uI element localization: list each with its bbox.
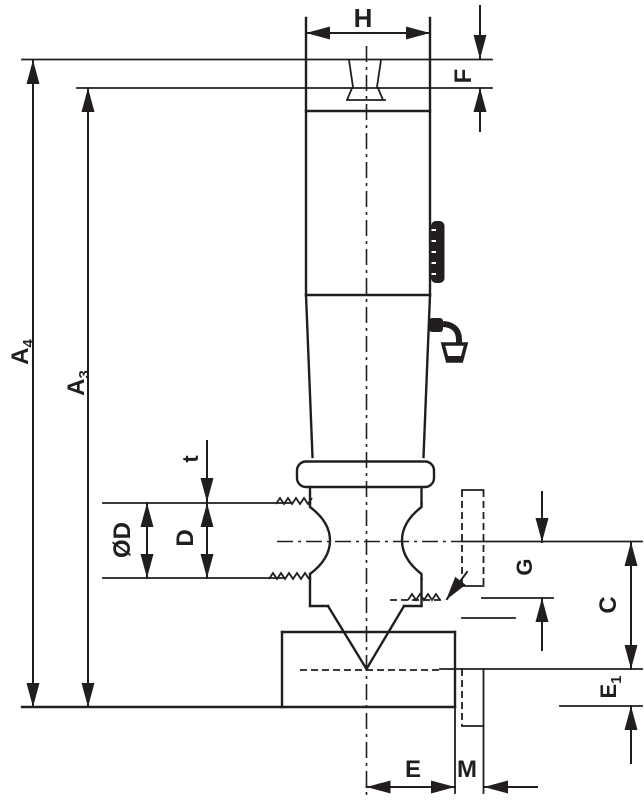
dim-A3: A3 <box>63 88 95 707</box>
finish-mark-box <box>429 318 443 332</box>
dim-label-A3-base: A <box>63 379 90 396</box>
arrowhead-down <box>201 554 214 578</box>
thread-leader <box>441 572 467 604</box>
drawing-canvas: H F A4 A3 t ØD D <box>0 0 644 800</box>
arrowhead-down <box>625 645 638 669</box>
flange-outline <box>297 462 434 488</box>
arrowhead-left <box>367 781 391 794</box>
knurl-band-icon <box>431 221 445 283</box>
dim-label-A3: A3 <box>63 370 93 396</box>
technical-drawing: H F A4 A3 t ØD D <box>0 0 644 800</box>
arrowhead-up <box>82 88 95 112</box>
hidden-features <box>300 490 515 726</box>
arrowhead-down <box>82 683 95 707</box>
taper-right-edge <box>424 295 431 457</box>
arrowhead-down <box>27 683 40 707</box>
dim-M: M <box>457 726 537 794</box>
dim-D: D <box>172 503 214 578</box>
dim-label-F: F <box>450 69 477 84</box>
arrowhead-down <box>474 35 487 59</box>
dim-label-H: H <box>354 3 373 33</box>
arrowhead-left <box>306 27 330 40</box>
dim-G: G <box>463 492 642 650</box>
arrowhead-down <box>201 478 214 502</box>
dim-A4: A4 <box>7 60 40 707</box>
dim-label-E1-base: E <box>596 684 621 699</box>
dim-H: H <box>306 3 430 40</box>
dim-label-E1: E1 <box>596 675 625 698</box>
dim-label-D: D <box>172 529 199 546</box>
arrowhead-up <box>27 60 40 84</box>
part-outline <box>22 18 492 707</box>
dim-label-A4: A4 <box>7 339 37 365</box>
dim-label-C: C <box>595 596 622 613</box>
arrowhead-down <box>141 554 154 578</box>
arrowhead-right <box>431 781 455 794</box>
taper-left-edge <box>306 295 313 457</box>
arrowhead-down <box>536 518 549 542</box>
dim-t: t <box>178 441 214 502</box>
arrowhead-up <box>625 542 638 566</box>
dim-label-A4-sub: 4 <box>20 339 37 348</box>
dim-label-E1-sub: 1 <box>608 675 625 683</box>
dim-label-A4-base: A <box>7 348 34 365</box>
finish-mark-hook <box>443 324 459 345</box>
dim-F: F <box>450 6 487 131</box>
center-hole-right <box>377 60 381 87</box>
surface-finish-icon <box>429 318 466 361</box>
dim-E: E <box>367 707 456 794</box>
arrowhead-up <box>474 88 487 112</box>
dim-label-G: G <box>512 558 537 575</box>
dim-label-OD: ØD <box>109 522 136 558</box>
dim-E1: E1 <box>560 675 642 763</box>
dim-label-E: E <box>405 756 421 783</box>
dim-label-A3-sub: 3 <box>76 370 93 378</box>
drill-cone-left <box>328 606 367 669</box>
dim-label-t: t <box>178 455 203 463</box>
arrowhead-up <box>625 706 638 730</box>
arrowhead-up <box>141 503 154 527</box>
arrowhead-up <box>201 503 214 527</box>
drill-cone-right <box>367 606 405 669</box>
dim-label-M: M <box>457 756 477 783</box>
center-hole-left <box>349 60 353 87</box>
arrowhead-up <box>536 598 549 622</box>
arrowhead-right <box>406 27 430 40</box>
arrowhead-left <box>484 781 508 794</box>
